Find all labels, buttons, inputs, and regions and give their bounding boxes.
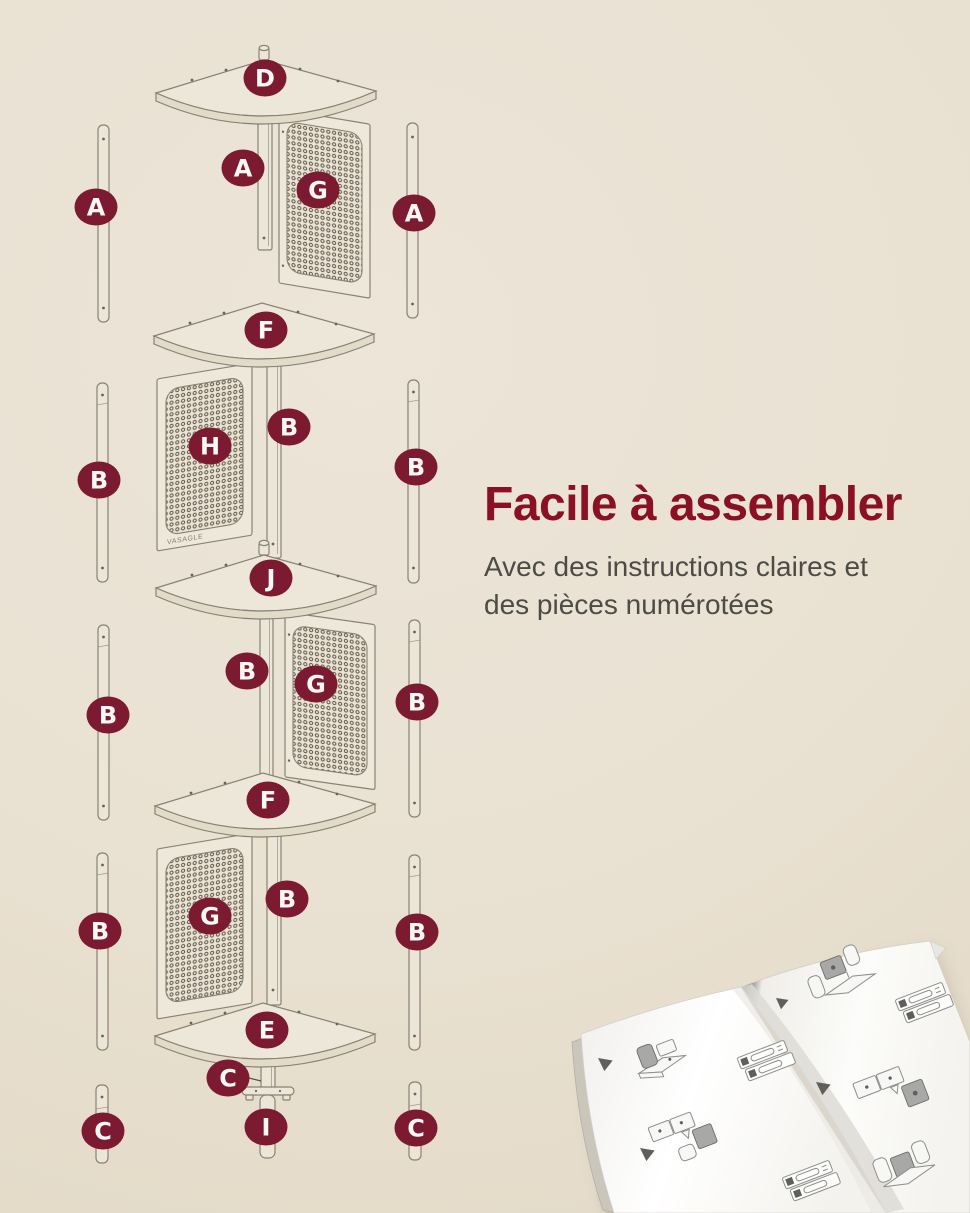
badge-support-3: B bbox=[226, 653, 269, 690]
mesh-panel-g3 bbox=[285, 612, 375, 790]
badge-pole-left-5: C bbox=[82, 1113, 125, 1150]
badge-pole-right-1: A bbox=[393, 195, 436, 232]
product-assembly-graphic: VASAGLE bbox=[0, 0, 970, 1213]
badge-shelf-2: F bbox=[245, 312, 288, 349]
svg-text:B: B bbox=[99, 702, 117, 730]
exploded-diagram: VASAGLE bbox=[75, 45, 439, 1163]
badge-mesh-4: G bbox=[189, 898, 232, 935]
svg-text:B: B bbox=[408, 919, 426, 947]
support-strip-3 bbox=[260, 600, 273, 792]
svg-text:B: B bbox=[280, 414, 298, 442]
svg-text:G: G bbox=[200, 903, 220, 931]
svg-text:C: C bbox=[407, 1115, 425, 1143]
svg-text:A: A bbox=[234, 155, 253, 183]
svg-text:E: E bbox=[259, 1017, 275, 1045]
badge-leveler: I bbox=[245, 1109, 288, 1146]
headline: Facile à assembler bbox=[484, 480, 970, 530]
badge-pole-right-2: B bbox=[395, 449, 438, 486]
svg-text:F: F bbox=[260, 787, 276, 815]
svg-text:G: G bbox=[308, 177, 328, 205]
subheadline: Avec des instructions claires et des piè… bbox=[484, 548, 970, 623]
instruction-booklet bbox=[572, 940, 970, 1213]
svg-text:B: B bbox=[238, 658, 256, 686]
svg-text:G: G bbox=[306, 671, 326, 699]
svg-text:C: C bbox=[94, 1118, 112, 1146]
svg-text:H: H bbox=[200, 433, 220, 461]
badge-foot-center: C bbox=[207, 1060, 250, 1097]
badge-pole-left-3: B bbox=[87, 697, 130, 734]
pole-b-left-4 bbox=[97, 853, 108, 1050]
pole-b-right-4 bbox=[409, 855, 420, 1050]
svg-text:D: D bbox=[255, 65, 275, 93]
support-strip-2 bbox=[267, 348, 281, 558]
badge-shelf-top: D bbox=[244, 60, 287, 97]
shelf-peg bbox=[259, 540, 269, 555]
badge-mesh-3: G bbox=[295, 666, 338, 703]
badge-shelf-3: J bbox=[250, 560, 293, 597]
badge-support-4: B bbox=[266, 881, 309, 918]
svg-text:B: B bbox=[407, 454, 425, 482]
badge-shelf-5: E bbox=[246, 1012, 289, 1049]
svg-text:B: B bbox=[90, 467, 108, 495]
svg-text:B: B bbox=[278, 886, 296, 914]
leader-line-c bbox=[249, 1078, 261, 1081]
badge-pole-left-4: B bbox=[79, 913, 122, 950]
badge-pole-right-4: B bbox=[396, 914, 439, 951]
svg-text:I: I bbox=[262, 1114, 271, 1142]
badge-mesh-2: H bbox=[189, 428, 232, 465]
svg-text:J: J bbox=[265, 565, 276, 593]
svg-text:A: A bbox=[87, 194, 106, 222]
svg-text:B: B bbox=[91, 918, 109, 946]
marketing-copy: Facile à assembler Avec des instructions… bbox=[484, 480, 970, 623]
badge-pole-left-2: B bbox=[78, 462, 121, 499]
badge-pole-right-5: C bbox=[395, 1110, 438, 1147]
shelf-peg bbox=[259, 45, 269, 60]
svg-text:F: F bbox=[258, 317, 274, 345]
badge-pole-right-3: B bbox=[396, 684, 439, 721]
svg-text:B: B bbox=[408, 689, 426, 717]
badge-support-2: B bbox=[268, 409, 311, 446]
subheadline-line-2: des pièces numérotées bbox=[484, 589, 774, 620]
svg-text:A: A bbox=[405, 200, 424, 228]
badge-mesh-1: G bbox=[297, 172, 340, 209]
svg-text:C: C bbox=[219, 1065, 237, 1093]
badge-shelf-4: F bbox=[247, 782, 290, 819]
subheadline-line-1: Avec des instructions claires et bbox=[484, 551, 868, 582]
badge-support-1: A bbox=[222, 150, 265, 187]
badge-pole-left-1: A bbox=[75, 189, 118, 226]
